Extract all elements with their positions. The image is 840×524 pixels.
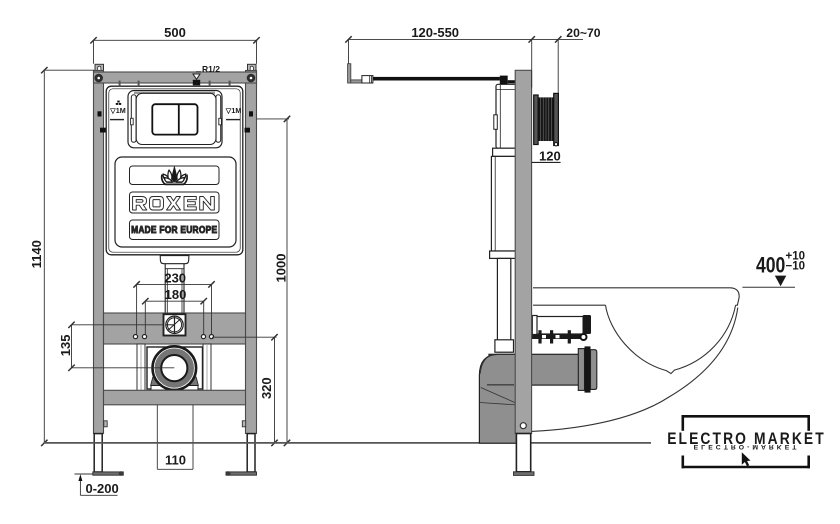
svg-text:1140: 1140 <box>29 240 44 268</box>
svg-text:▽1M: ▽1M <box>109 106 126 115</box>
svg-text:120-550: 120-550 <box>411 25 459 40</box>
svg-text:▽1M: ▽1M <box>225 106 242 115</box>
svg-text:ELECTRO-MARKET: ELECTRO-MARKET <box>694 443 800 450</box>
svg-text:400: 400 <box>756 254 785 278</box>
svg-text:−10: −10 <box>786 260 806 272</box>
svg-text:20~70: 20~70 <box>566 26 600 40</box>
svg-text:1000: 1000 <box>273 254 288 283</box>
svg-text:135: 135 <box>58 335 73 357</box>
svg-text:180: 180 <box>165 287 187 302</box>
svg-text:230: 230 <box>164 270 186 285</box>
svg-text:120: 120 <box>539 149 561 164</box>
svg-text:MADE FOR EUROPE: MADE FOR EUROPE <box>131 225 217 236</box>
svg-text:R1/2: R1/2 <box>202 64 220 74</box>
svg-text:500: 500 <box>164 25 186 40</box>
svg-text:110: 110 <box>165 452 186 467</box>
svg-text:0-200: 0-200 <box>86 481 119 496</box>
svg-text:320: 320 <box>259 377 274 399</box>
